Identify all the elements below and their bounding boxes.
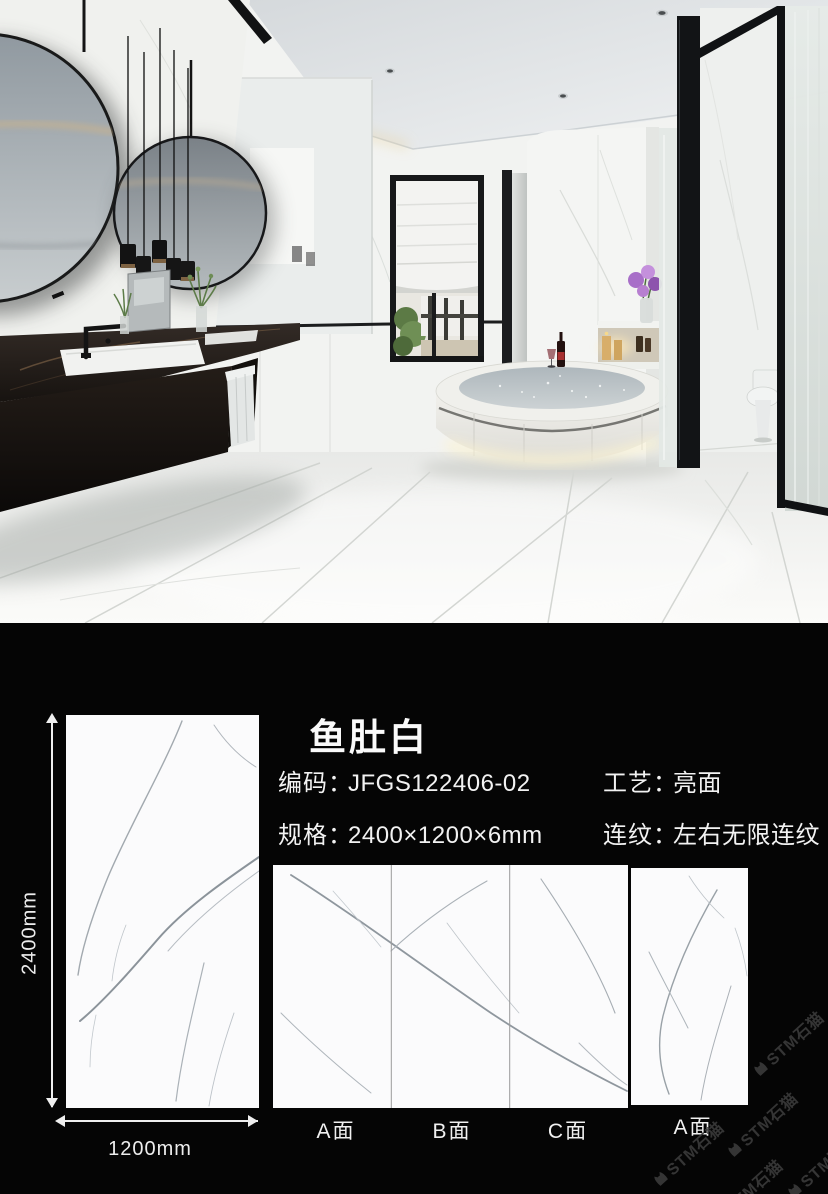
spec-pattern-label: 连纹： <box>603 815 673 850</box>
face-label-a: A面 <box>316 1115 355 1145</box>
window-shade <box>396 181 478 293</box>
spec-pattern-value: 左右无限连纹 <box>673 815 820 850</box>
cat-logo-icon <box>725 1140 743 1158</box>
candle <box>614 340 622 360</box>
spec-code-label: 编码： <box>278 763 348 798</box>
product-poster: 鱼肚白 编码： JFGS122406-02 工艺： 亮面 规格： 2400×12… <box>0 0 828 1194</box>
arrow-left-icon <box>55 1115 65 1127</box>
arrow-down-icon <box>46 1098 58 1108</box>
dimension-height-label: 2400mm <box>19 891 42 975</box>
watermark: STM石猫 <box>747 1005 828 1082</box>
towel <box>227 371 255 447</box>
spec-size-label: 规格： <box>278 815 348 850</box>
tile-sample-group <box>273 865 628 1108</box>
spec-pattern: 连纹： 左右无限连纹 <box>603 815 820 850</box>
partition-mullion <box>677 16 700 468</box>
spec-finish-label: 工艺： <box>603 763 673 798</box>
product-title: 鱼肚白 <box>309 707 429 761</box>
dimension-line-width <box>58 1120 258 1122</box>
dimension-width-label: 1200mm <box>108 1138 192 1161</box>
window <box>390 175 484 362</box>
face-label-b: B面 <box>432 1115 471 1145</box>
bottle <box>645 338 651 352</box>
cat-logo-icon <box>751 1059 769 1077</box>
watermark: STM石猫 <box>706 1153 787 1194</box>
spec-size: 规格： 2400×1200×6mm <box>278 815 543 850</box>
spec-size-value: 2400×1200×6mm <box>348 822 543 850</box>
spec-finish-value: 亮面 <box>673 763 722 798</box>
tile-sample-large <box>66 715 259 1108</box>
bathroom-photo <box>0 0 828 623</box>
spec-finish: 工艺： 亮面 <box>603 763 722 798</box>
watermark: STM石猫 <box>781 1127 828 1194</box>
tub-water <box>459 367 645 409</box>
cat-logo-icon <box>785 1181 803 1194</box>
candle <box>602 336 611 360</box>
spec-code-value: JFGS122406-02 <box>348 770 531 798</box>
tile-sample-single <box>631 868 748 1105</box>
dimension-line-height <box>51 717 53 1107</box>
arrow-up-icon <box>46 713 58 723</box>
cat-logo-icon <box>651 1169 669 1187</box>
face-label-c: C面 <box>548 1115 588 1145</box>
arrow-right-icon <box>248 1115 258 1127</box>
doorway <box>502 170 527 366</box>
glass-sliver <box>659 128 678 467</box>
shelf-niche <box>594 321 660 369</box>
spec-code: 编码： JFGS122406-02 <box>278 763 531 798</box>
bottle <box>636 336 643 352</box>
